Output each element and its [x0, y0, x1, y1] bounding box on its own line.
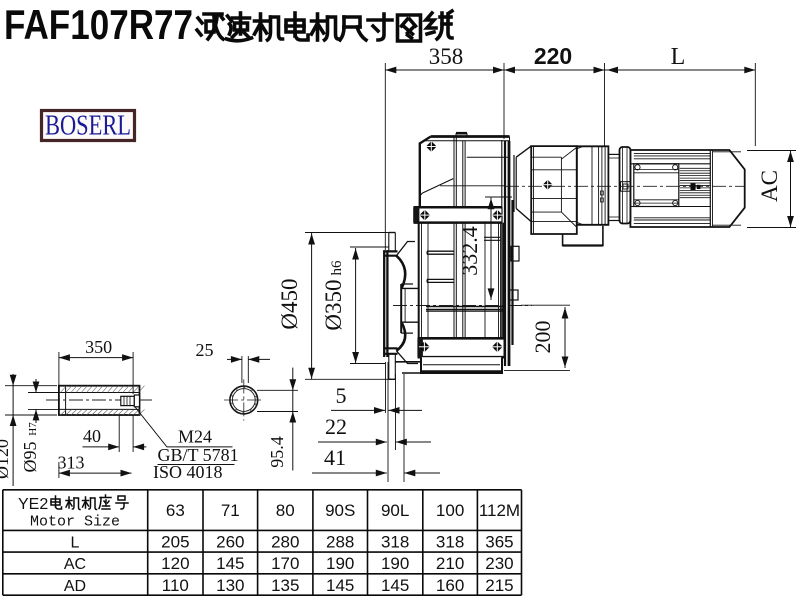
- svg-text:AC: AC: [64, 556, 86, 573]
- svg-text:M24: M24: [178, 427, 212, 447]
- svg-text:71: 71: [221, 501, 240, 520]
- svg-text:41: 41: [324, 445, 346, 470]
- svg-text:YE2: YE2: [18, 496, 48, 513]
- svg-text:332.4: 332.4: [457, 226, 482, 276]
- svg-text:170: 170: [271, 554, 299, 573]
- svg-text:H7: H7: [27, 422, 39, 436]
- svg-text:112M: 112M: [479, 501, 520, 520]
- svg-text:ISO 4018: ISO 4018: [153, 462, 223, 482]
- svg-text:90S: 90S: [325, 501, 355, 520]
- svg-text:280: 280: [271, 533, 299, 552]
- svg-text:200: 200: [530, 321, 555, 354]
- svg-text:350: 350: [85, 337, 112, 357]
- svg-text:40: 40: [83, 426, 101, 446]
- svg-text:313: 313: [58, 453, 85, 473]
- svg-text:190: 190: [381, 554, 409, 573]
- svg-text:120: 120: [161, 554, 189, 573]
- svg-text:130: 130: [216, 576, 244, 595]
- svg-text:90L: 90L: [381, 501, 409, 520]
- svg-text:145: 145: [216, 554, 244, 573]
- svg-text:Ø350: Ø350: [321, 279, 346, 330]
- svg-text:h6: h6: [329, 260, 345, 276]
- svg-text:AC: AC: [757, 170, 782, 202]
- svg-text:63: 63: [166, 501, 185, 520]
- svg-text:358: 358: [429, 44, 464, 69]
- svg-text:22: 22: [325, 414, 347, 439]
- svg-text:AD: AD: [64, 578, 86, 595]
- svg-text:25: 25: [196, 340, 214, 360]
- svg-text:205: 205: [161, 533, 189, 552]
- svg-text:BOSERL: BOSERL: [45, 110, 131, 142]
- svg-text:260: 260: [216, 533, 244, 552]
- svg-text:210: 210: [436, 554, 464, 573]
- svg-text:100: 100: [436, 501, 464, 520]
- svg-text:318: 318: [436, 533, 464, 552]
- svg-text:145: 145: [381, 576, 409, 595]
- svg-text:318: 318: [381, 533, 409, 552]
- svg-text:Ø450: Ø450: [277, 278, 302, 329]
- svg-text:190: 190: [326, 554, 354, 573]
- svg-text:215: 215: [485, 576, 513, 595]
- svg-text:145: 145: [326, 576, 354, 595]
- svg-text:365: 365: [485, 533, 513, 552]
- svg-text:80: 80: [276, 501, 295, 520]
- svg-text:L: L: [671, 44, 686, 70]
- svg-text:Ø120: Ø120: [0, 439, 12, 479]
- svg-text:160: 160: [436, 576, 464, 595]
- svg-text:135: 135: [271, 576, 299, 595]
- svg-text:95.4: 95.4: [267, 436, 287, 468]
- svg-text:Motor Size: Motor Size: [30, 514, 120, 531]
- svg-text:288: 288: [326, 533, 354, 552]
- svg-text:230: 230: [485, 554, 513, 573]
- svg-text:FAF107R77: FAF107R77: [4, 1, 193, 48]
- svg-text:220: 220: [534, 43, 572, 69]
- svg-text:L: L: [71, 535, 80, 552]
- svg-text:5: 5: [336, 383, 347, 408]
- svg-text:110: 110: [162, 576, 189, 595]
- svg-text:Ø95: Ø95: [20, 442, 40, 473]
